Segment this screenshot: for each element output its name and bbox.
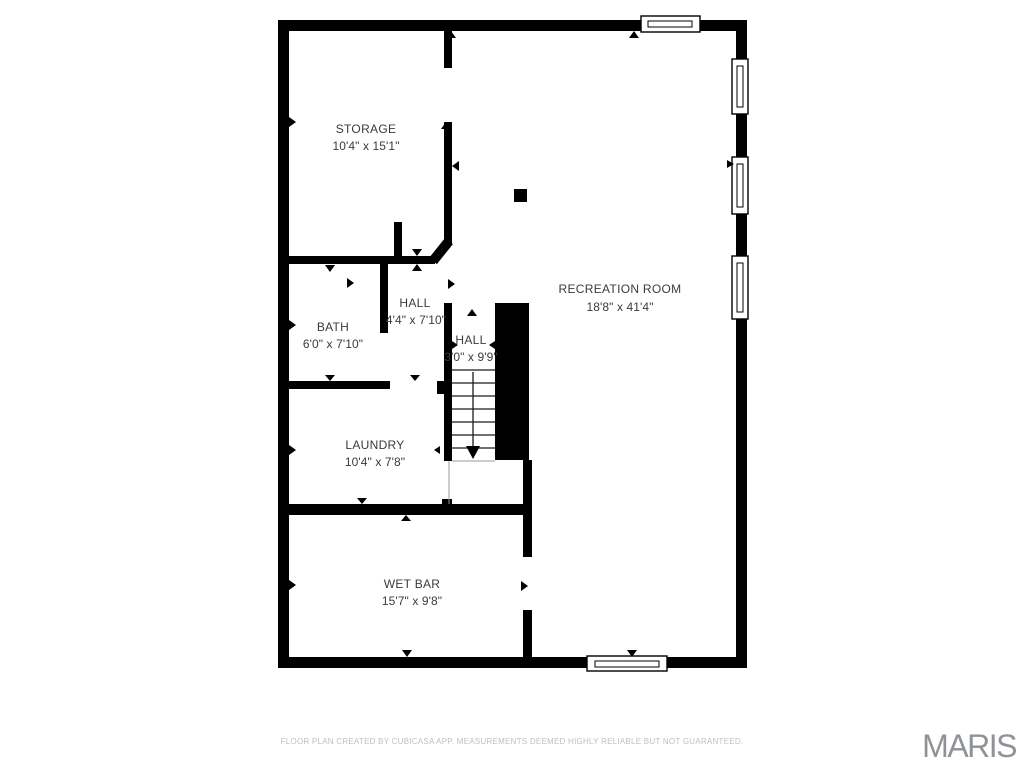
wall-stair-jamb-block bbox=[437, 381, 450, 394]
door-tick-icon bbox=[289, 117, 296, 127]
door-tick-icon bbox=[412, 249, 422, 256]
door-tick-icon bbox=[325, 265, 335, 272]
room-dims-laundry: 10'4" x 7'8" bbox=[345, 455, 405, 469]
room-label-laundry: LAUNDRY bbox=[345, 438, 404, 452]
door-tick-icon bbox=[289, 320, 296, 330]
disclaimer-text: FLOOR PLAN CREATED BY CUBICASA APP. MEAS… bbox=[281, 737, 744, 746]
window-right-1 bbox=[732, 59, 748, 114]
wall-laundry-jamb-block bbox=[442, 499, 452, 515]
door-tick-icon bbox=[289, 445, 296, 455]
floor-plan-page: STORAGE 10'4" x 15'1" RECREATION ROOM 18… bbox=[0, 0, 1024, 767]
room-dims-bath: 6'0" x 7'10" bbox=[303, 337, 363, 351]
door-tick-icon bbox=[347, 278, 354, 288]
room-label-hall: HALL bbox=[399, 296, 430, 310]
window-top bbox=[641, 16, 700, 32]
wall-hall-top bbox=[278, 256, 435, 264]
door-tick-icon bbox=[434, 446, 440, 454]
door-tick-icon bbox=[412, 264, 422, 271]
wall-right bbox=[736, 20, 747, 668]
windows bbox=[587, 16, 748, 671]
room-dims-stair-hall: 3'0" x 9'9" bbox=[444, 350, 498, 364]
room-dims-recreation: 18'8" x 41'4" bbox=[586, 300, 653, 314]
window-bottom bbox=[587, 656, 667, 671]
door-tick-icon bbox=[521, 581, 528, 591]
room-label-recreation: RECREATION ROOM bbox=[559, 282, 682, 296]
support-column-icon bbox=[514, 189, 527, 202]
door-tick-icon bbox=[357, 498, 367, 504]
wall-bath-bottom bbox=[278, 381, 390, 389]
door-tick-icon bbox=[629, 31, 639, 38]
wall-laundry-bottom bbox=[278, 504, 532, 515]
maris-logo: MARIS bbox=[922, 728, 1016, 764]
room-dims-storage: 10'4" x 15'1" bbox=[332, 139, 399, 153]
wall-storage-diagonal bbox=[433, 241, 449, 261]
room-label-stair-hall: HALL bbox=[455, 333, 486, 347]
wall-stair-mass bbox=[495, 303, 529, 460]
wall-storage-stub bbox=[394, 222, 402, 264]
wall-wetbar-right-lower bbox=[523, 610, 532, 657]
window-right-3 bbox=[732, 256, 748, 319]
room-label-storage: STORAGE bbox=[336, 122, 397, 136]
window-right-2 bbox=[732, 157, 748, 214]
door-tick-icon bbox=[401, 515, 411, 521]
door-tick-icon bbox=[325, 375, 335, 381]
door-tick-icon bbox=[410, 375, 420, 381]
room-label-wet-bar: WET BAR bbox=[384, 577, 441, 591]
staircase-icon bbox=[449, 370, 495, 504]
wall-left bbox=[278, 20, 289, 668]
door-tick-icon bbox=[467, 309, 477, 316]
room-dims-wet-bar: 15'7" x 9'8" bbox=[382, 594, 442, 608]
stair-down-arrow-icon bbox=[466, 446, 480, 459]
wall-storage-right-lower bbox=[444, 122, 452, 245]
door-tick-icon bbox=[448, 279, 455, 289]
door-tick-icon bbox=[289, 580, 296, 590]
room-labels: STORAGE 10'4" x 15'1" RECREATION ROOM 18… bbox=[303, 122, 682, 608]
door-tick-icon bbox=[452, 161, 459, 171]
room-label-bath: BATH bbox=[317, 320, 349, 334]
floor-plan: STORAGE 10'4" x 15'1" RECREATION ROOM 18… bbox=[0, 0, 1024, 767]
door-tick-icon bbox=[402, 650, 412, 657]
wall-bottom bbox=[278, 657, 747, 668]
wall-wetbar-right-upper bbox=[523, 515, 532, 557]
room-dims-hall: 4'4" x 7'10" bbox=[386, 313, 446, 327]
door-tick-icon bbox=[489, 341, 495, 349]
